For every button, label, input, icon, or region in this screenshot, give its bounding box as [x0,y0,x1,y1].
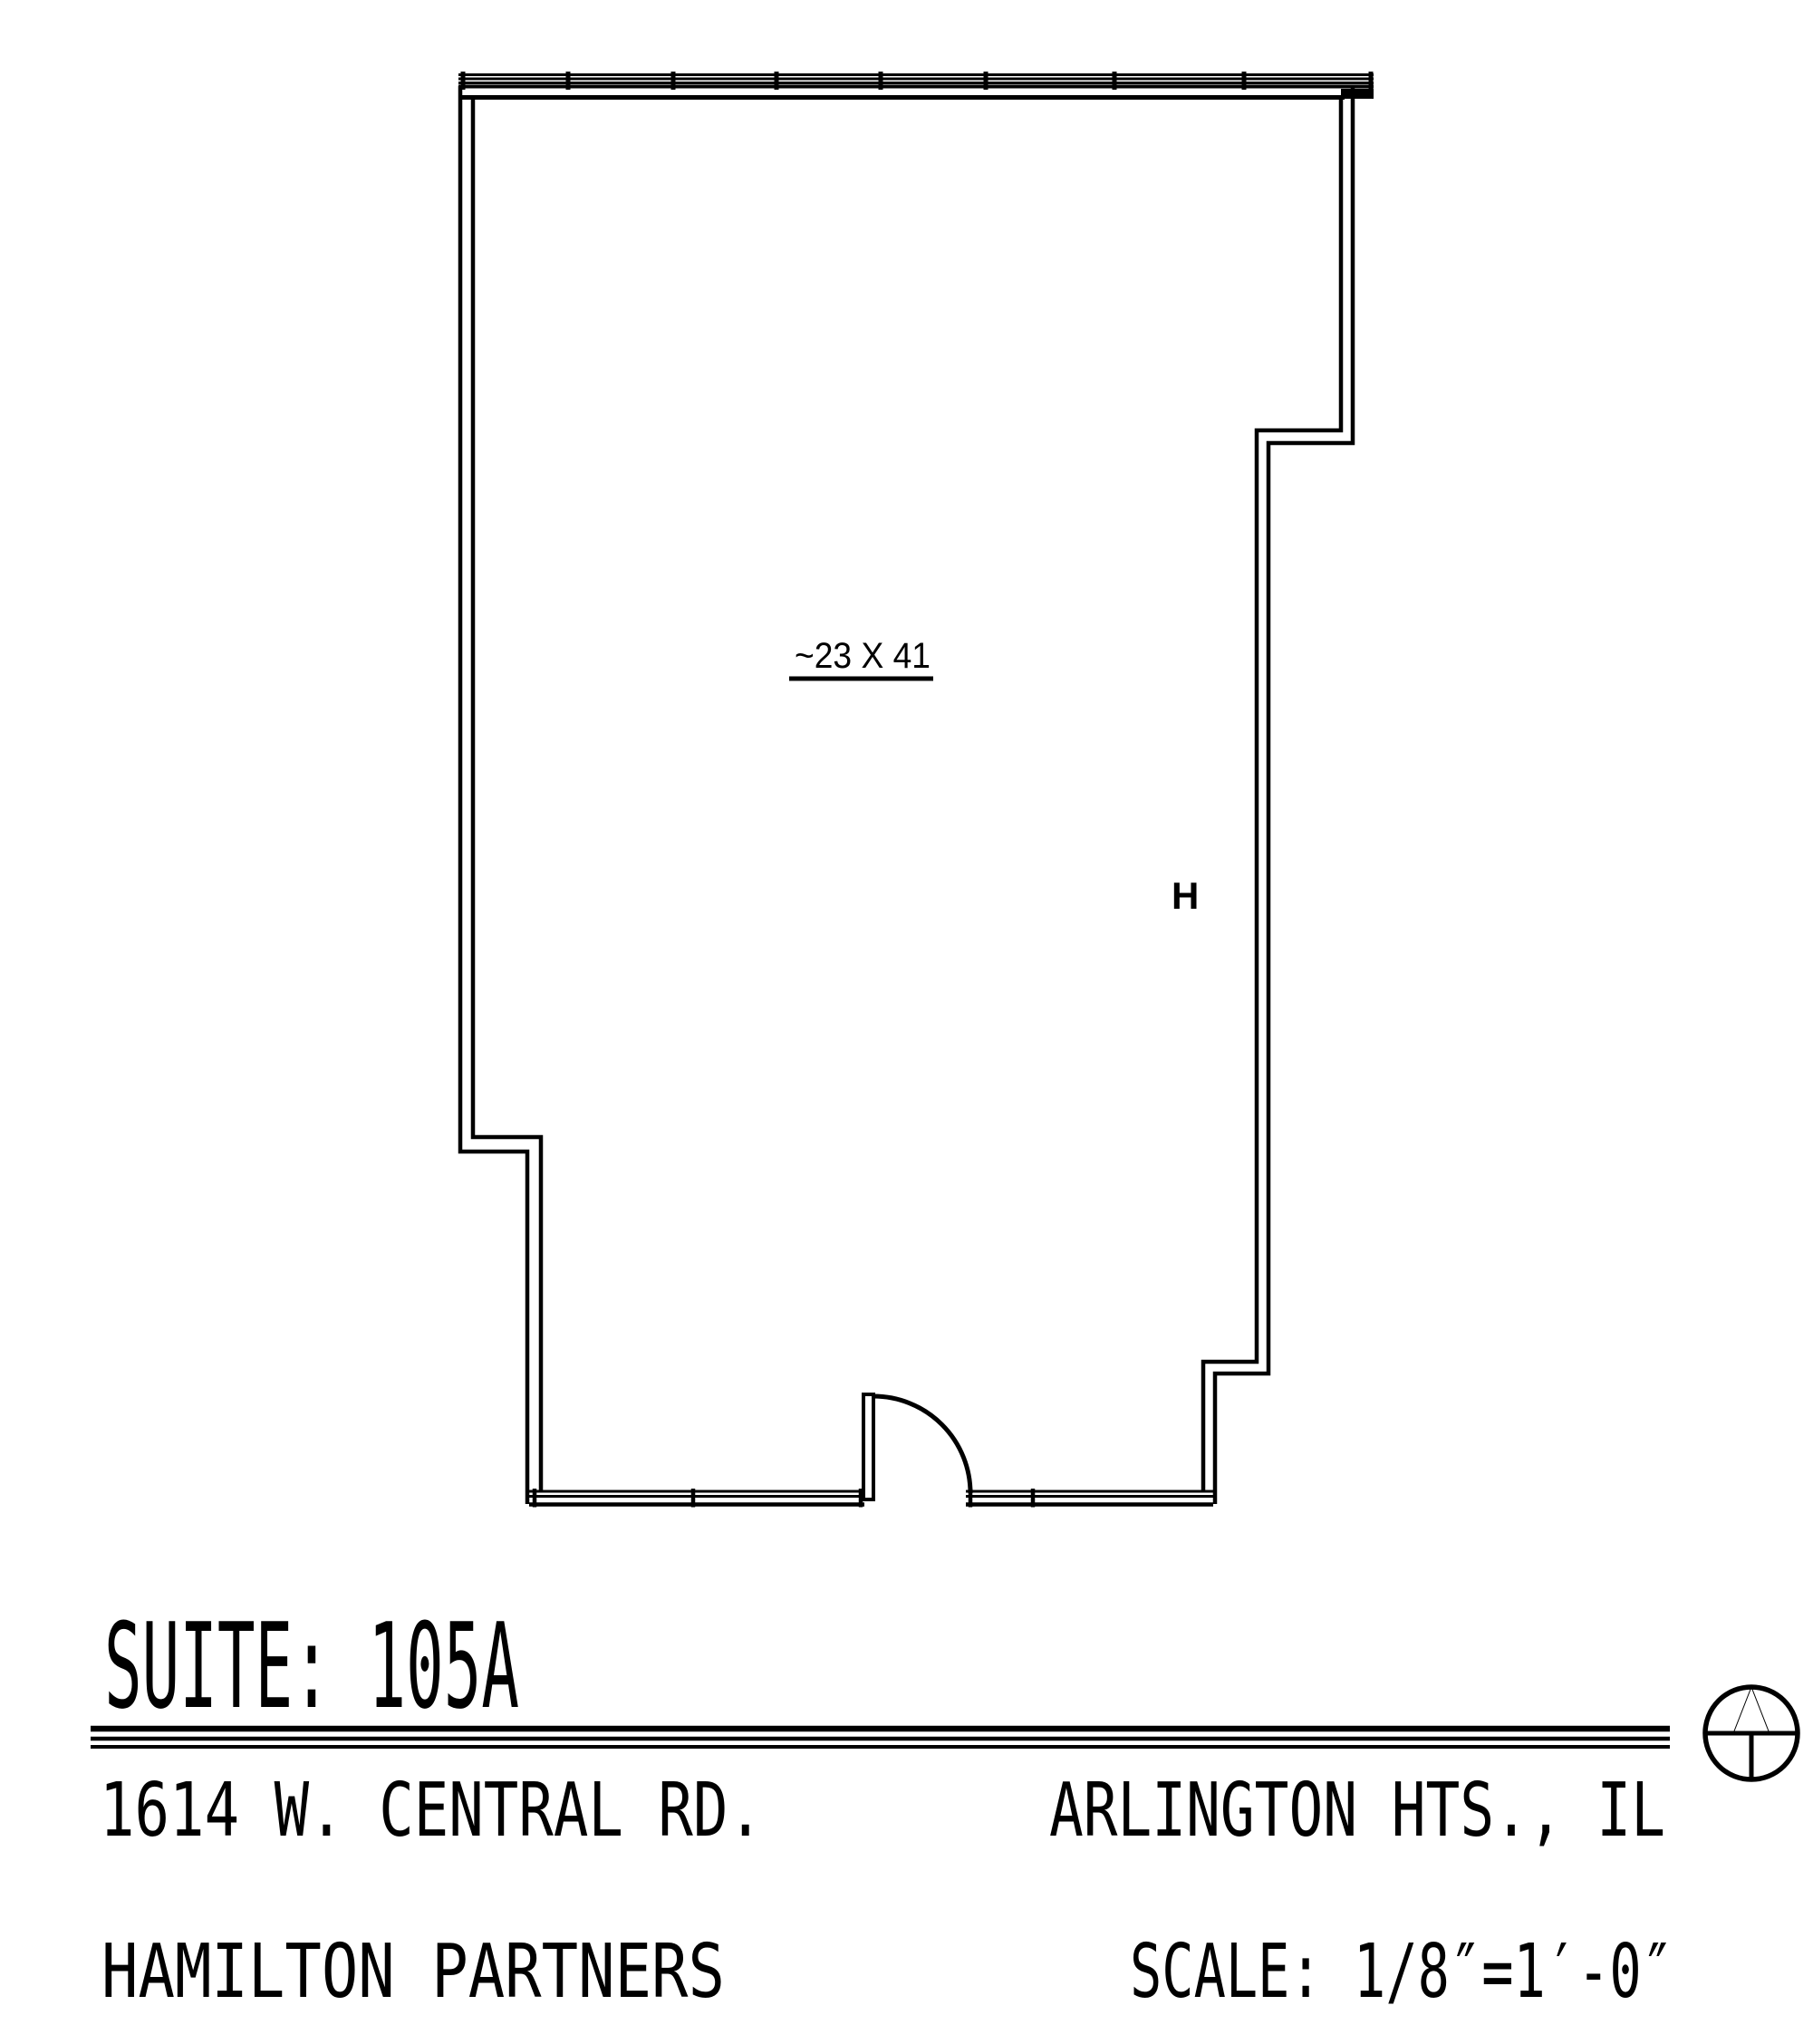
street-address: 1614 W. CENTRAL RD. [100,1768,763,1854]
door-hardware-marker: H [1172,874,1199,917]
left-wall [460,86,541,1504]
title-underline [91,1729,1670,1747]
left-wall-outer-line [460,86,527,1504]
top-window-band-lines [458,75,1374,83]
suite-title: SUITE: 105A [104,1597,519,1735]
bottom-window-band-left [529,1491,864,1497]
bottom-window-band-right [966,1491,1213,1497]
area-label: ~23 X 41 [795,636,931,676]
right-wall [1203,88,1353,1504]
north-arrow-triangle [1734,1687,1770,1732]
right-wall-inner-line [1203,97,1341,1492]
title-block: SUITE: 105A 1614 W. CENTRAL RD. ARLINGTO… [91,1597,1798,2015]
north-arrow-icon [1705,1687,1798,1779]
left-wall-inner-line [473,97,541,1492]
top-window-wall [458,72,1374,98]
suite-outline [458,72,1374,1508]
scale-label: SCALE: 1/8″=1′-0″ [1130,1929,1673,2015]
floor-plan-sheet: ~23 X 41 H SUITE: 105A 1614 W. CENTRAL R… [0,0,1813,2044]
door-leaf [863,1394,873,1499]
entry-door [863,1394,970,1499]
company-name: HAMILTON PARTNERS [101,1929,725,2015]
plan-annotations: ~23 X 41 H [789,636,1199,917]
right-wall-outer-line [1215,88,1353,1504]
door-swing-arc [873,1396,970,1493]
floor-plan-drawing: ~23 X 41 H SUITE: 105A 1614 W. CENTRAL R… [0,0,1813,2044]
city-state: ARLINGTON HTS., IL [1049,1768,1665,1854]
